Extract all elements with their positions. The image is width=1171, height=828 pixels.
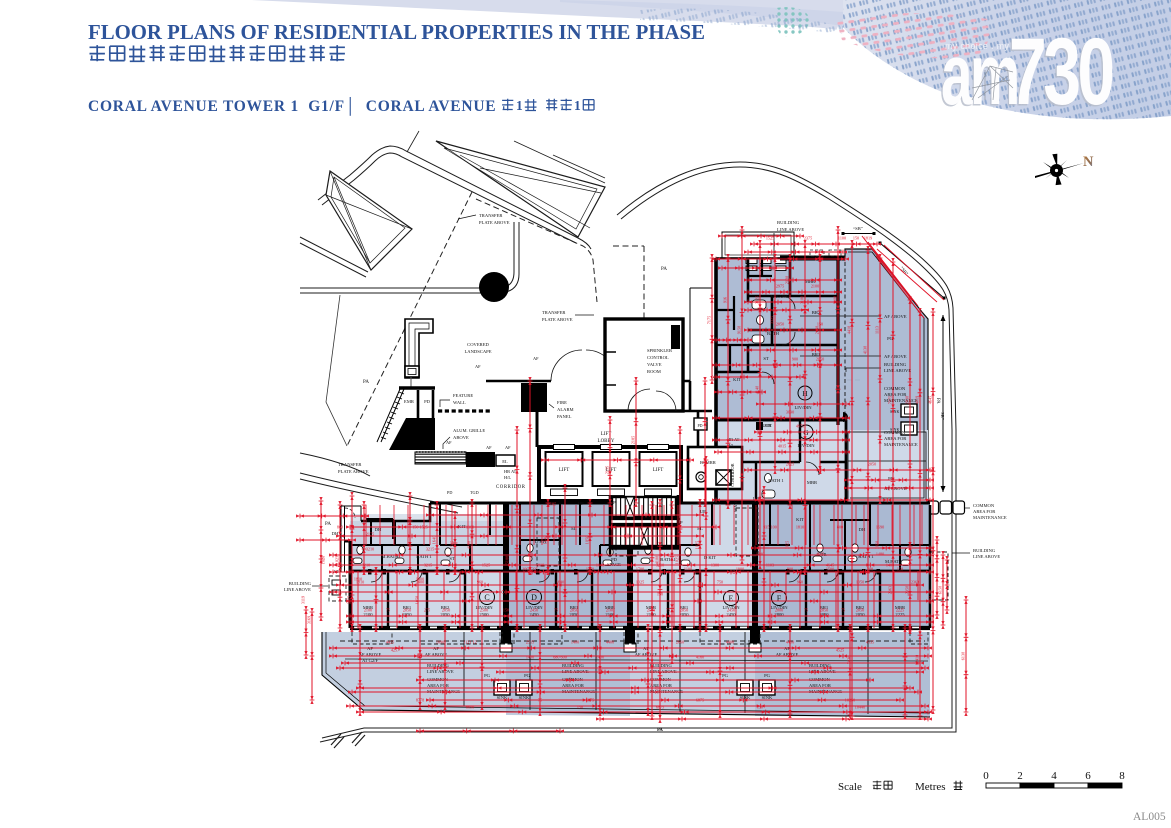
svg-text:TGD: TGD [470,490,479,495]
svg-text:1810: 1810 [536,563,544,568]
svg-text:2363: 2363 [888,586,893,594]
svg-text:6: 6 [1085,770,1091,782]
svg-text:“SB”: “SB” [853,226,863,231]
svg-text:4425: 4425 [386,640,394,645]
svg-text:AREA FOR: AREA FOR [427,683,449,688]
svg-text:BUILDING: BUILDING [562,663,584,668]
svg-text:4645: 4645 [826,563,834,568]
svg-text:4535: 4535 [866,640,874,645]
svg-text:ROOM: ROOM [647,369,661,374]
svg-text:CORRIDOR: CORRIDOR [496,485,526,490]
svg-text:TRANSFER: TRANSFER [479,213,503,218]
svg-text:4: 4 [1051,770,1057,782]
svg-text:KIT: KIT [733,377,741,382]
svg-text:75: 75 [666,608,670,613]
svg-text:300: 300 [867,567,873,572]
svg-text:2375: 2375 [804,236,812,241]
svg-text:2100: 2100 [785,276,790,284]
svg-text:1480: 1480 [876,552,884,557]
svg-text:UTR: UTR [762,423,772,428]
svg-text:2175: 2175 [366,532,374,537]
svg-text:ST: ST [763,356,769,361]
svg-text:4100: 4100 [655,556,660,564]
svg-text:PG: PG [764,673,771,678]
svg-text:RSMRR: RSMRR [700,460,717,465]
svg-text:75: 75 [386,608,390,613]
svg-text:2050: 2050 [776,322,784,327]
svg-text:BUILDING: BUILDING [650,663,672,668]
svg-text:FIRE: FIRE [557,400,567,405]
svg-text:AL005: AL005 [1133,811,1166,823]
svg-text:1640: 1640 [432,536,437,544]
svg-text:10440: 10440 [855,705,865,710]
svg-text:AF: AF [533,356,539,361]
svg-text:1050: 1050 [415,596,420,604]
svg-text:4400: 4400 [786,640,794,645]
svg-text:4525: 4525 [836,648,844,653]
svg-text:2135: 2135 [605,466,610,474]
svg-text:FEATURE: FEATURE [453,393,473,398]
svg-text:Scale: Scale [838,781,862,793]
svg-text:75: 75 [538,698,542,703]
svg-text:2050: 2050 [856,608,864,613]
svg-text:1050: 1050 [875,541,880,549]
svg-text:1690: 1690 [436,640,444,645]
svg-text:AREA FOR: AREA FOR [973,509,996,514]
svg-text:AREA FOR: AREA FOR [650,683,672,688]
svg-text:BUILDING: BUILDING [884,362,907,367]
svg-text:6130: 6130 [961,652,966,660]
svg-text:2185: 2185 [631,436,636,444]
svg-text:ALARM: ALARM [557,407,574,412]
svg-text:WALL: WALL [453,400,466,405]
svg-text:AF: AF [505,445,511,450]
svg-text:BUILDING: BUILDING [973,548,996,553]
svg-text:3215: 3215 [424,563,432,568]
svg-text:4400: 4400 [726,640,734,645]
svg-text:7028: 7028 [847,656,852,664]
svg-text:4410: 4410 [847,326,852,334]
svg-text:LOBBY: LOBBY [598,439,615,444]
svg-text:2975: 2975 [776,284,784,289]
svg-text:2100: 2100 [811,284,819,289]
svg-text:4312: 4312 [928,596,933,604]
svg-text:TRANSFER: TRANSFER [338,462,362,467]
svg-text:LINE ABOVE: LINE ABOVE [884,368,911,373]
svg-text:1103: 1103 [766,563,774,568]
svg-text:CONTROL: CONTROL [647,355,669,360]
svg-text:150: 150 [503,608,509,613]
svg-text:4645: 4645 [928,396,933,404]
svg-text:1100: 1100 [684,567,692,572]
svg-text:COVERED: COVERED [467,342,489,347]
svg-text:EL: EL [502,459,508,464]
svg-text:KIT: KIT [796,517,804,522]
svg-text:3090: 3090 [786,410,794,415]
svg-text:3215: 3215 [426,547,434,552]
svg-text:150: 150 [853,236,859,241]
svg-text:UP: UP [610,500,616,505]
svg-text:860: 860 [337,525,343,530]
svg-text:2100: 2100 [647,608,655,613]
svg-text:2100: 2100 [606,608,614,613]
svg-text:2350: 2350 [905,586,910,594]
svg-text:1810: 1810 [356,580,364,585]
svg-text:3169: 3169 [307,616,312,624]
svg-text:4160: 4160 [696,655,704,660]
svg-text:2625: 2625 [786,462,794,467]
svg-text:F: F [777,594,782,603]
svg-text:800: 800 [787,567,793,572]
svg-text:PA: PA [657,727,663,732]
svg-text:MBR: MBR [807,480,818,485]
svg-text:SINK: SINK [762,695,773,700]
svg-text:PA: PA [661,267,667,272]
svg-text:1690: 1690 [876,525,884,530]
svg-text:1025: 1025 [675,556,680,564]
svg-text:1300: 1300 [711,563,719,568]
svg-text:4975: 4975 [796,424,804,429]
svg-text:150 1525: 150 1525 [412,525,428,530]
svg-text:2030: 2030 [905,396,910,404]
svg-text:PG: PG [484,673,491,678]
svg-text:1525: 1525 [482,563,490,568]
svg-text:916: 916 [723,297,728,303]
svg-text:2050: 2050 [680,608,688,613]
svg-text:8: 8 [1119,770,1125,782]
svg-text:2450: 2450 [727,608,735,613]
svg-text:ABOVE: ABOVE [453,435,469,440]
svg-text:EMR: EMR [404,399,415,404]
svg-text:LANDSCAPE: LANDSCAPE [464,349,491,354]
svg-text:275: 275 [424,608,430,613]
svg-text:935 100: 935 100 [763,525,777,530]
svg-text:1300: 1300 [466,525,474,530]
svg-text:PA: PA [935,398,940,404]
svg-text:2100: 2100 [364,608,372,613]
svg-text:SINK: SINK [519,695,530,700]
svg-text:LINE ABOVE: LINE ABOVE [973,554,1000,559]
svg-text:2515: 2515 [526,640,534,645]
svg-text:TRANSFER: TRANSFER [542,310,566,315]
svg-text:960: 960 [477,580,483,585]
svg-text:AF: AF [446,440,452,445]
svg-text:7175: 7175 [707,316,712,324]
svg-text:SPRINKLER: SPRINKLER [647,348,673,353]
svg-text:AF ABOVE: AF ABOVE [884,314,907,319]
svg-text:LIFT: LIFT [559,468,570,473]
svg-text:1480: 1480 [886,563,894,568]
svg-text:800: 800 [837,525,843,530]
svg-text:3125: 3125 [755,296,760,304]
svg-text:75: 75 [804,608,808,613]
svg-text:1400: 1400 [571,640,579,645]
svg-text:3119: 3119 [301,596,306,604]
svg-text:COMMON: COMMON [884,430,906,435]
svg-text:6875: 6875 [656,705,664,710]
svg-text:3210: 3210 [362,563,370,568]
svg-text:1700: 1700 [636,567,644,572]
svg-text:PG: PG [722,673,729,678]
svg-text:AF: AF [475,364,481,369]
svg-text:900: 900 [792,357,798,362]
svg-text:3325: 3325 [770,316,775,324]
svg-text:2800: 2800 [775,608,783,613]
svg-text:LINE ABOVE: LINE ABOVE [284,587,311,592]
svg-text:1400: 1400 [596,655,604,660]
svg-text:1025: 1025 [785,541,790,549]
svg-text:AF ABOVE: AF ABOVE [884,354,907,359]
svg-text:1400: 1400 [416,580,424,585]
svg-text:4400: 4400 [606,640,614,645]
svg-text:1810: 1810 [796,525,804,530]
svg-text:4130: 4130 [863,346,868,354]
svg-text:1340: 1340 [756,552,764,557]
svg-text:8650: 8650 [466,705,474,710]
svg-text:1050: 1050 [856,580,864,585]
svg-text:1819: 1819 [864,236,872,241]
svg-text:4019: 4019 [915,396,920,404]
svg-text:7100: 7100 [655,686,660,694]
svg-text:2500: 2500 [480,608,488,613]
svg-text:VALVE: VALVE [647,362,662,367]
svg-text:0: 0 [983,770,989,782]
svg-text:750: 750 [717,580,723,585]
svg-text:2450: 2450 [530,608,538,613]
svg-text:150: 150 [897,567,903,572]
svg-text:LINE ABOVE: LINE ABOVE [777,227,804,232]
svg-text:BUILDING: BUILDING [289,581,312,586]
svg-text:N: N [1083,154,1094,170]
svg-text:4015: 4015 [778,444,786,449]
svg-text:680 600: 680 600 [553,655,567,660]
svg-text:BUILDING: BUILDING [809,663,831,668]
svg-text:1640: 1640 [556,580,564,585]
svg-text:1100: 1100 [838,236,846,241]
svg-text:1: 1 [516,98,523,113]
svg-text:PA: PA [325,522,331,527]
svg-text:2050: 2050 [570,608,578,613]
svg-text:H/L: H/L [504,475,511,480]
svg-text:MAINTENANCE: MAINTENANCE [973,515,1007,520]
svg-text:Metres: Metres [915,781,946,793]
svg-text:2050: 2050 [442,608,450,613]
svg-text:75: 75 [554,608,558,613]
svg-text:UP: UP [578,501,584,506]
svg-text:AREA FOR: AREA FOR [884,436,907,441]
svg-text:1640: 1640 [596,563,604,568]
svg-text:PLATE ABOVE: PLATE ABOVE [542,317,573,322]
svg-text:PD: PD [697,423,702,428]
svg-text:BATH: BATH [767,331,780,336]
svg-text:1400: 1400 [526,655,534,660]
svg-text:M.BATH: M.BATH [770,294,788,299]
svg-text:2225: 2225 [896,608,904,613]
svg-text:2: 2 [1017,770,1023,782]
svg-text:COMMON: COMMON [884,386,906,391]
svg-text:AREA FOR: AREA FOR [809,683,831,688]
svg-text:6875: 6875 [696,698,704,703]
svg-text:AF: AF [486,445,492,450]
svg-text:2050: 2050 [820,608,828,613]
svg-text:150: 150 [817,322,823,327]
svg-text:LIFT: LIFT [653,468,664,473]
svg-text:MAINTENANCE: MAINTENANCE [884,442,918,447]
svg-text:3100: 3100 [800,296,805,304]
svg-text:2050: 2050 [868,462,876,467]
svg-text:PANEL: PANEL [557,414,572,419]
svg-text:PD: PD [424,399,431,404]
svg-text:5188: 5188 [505,556,510,564]
svg-text:AREA FOR: AREA FOR [562,683,584,688]
svg-text:2660: 2660 [676,640,684,645]
svg-text:FLOOR PLANS OF RESIDENTIAL PRO: FLOOR PLANS OF RESIDENTIAL PROPERTIES IN… [88,21,705,44]
svg-text:ALUM. GRILLE: ALUM. GRILLE [453,428,485,433]
svg-text:1050: 1050 [585,536,590,544]
svg-text:CORRIDOR: CORRIDOR [730,462,735,487]
svg-text:ST: ST [449,556,455,561]
svg-text:1025: 1025 [636,580,644,585]
svg-text:DH: DH [859,527,866,532]
svg-text:CORAL AVENUE TOWER 1 G1/F│ C: CORAL AVENUE TOWER 1 G1/F│ CORAL AVENUE [88,96,496,116]
svg-text:2363: 2363 [911,580,919,585]
svg-text:9150: 9150 [737,326,742,334]
svg-text:730: 730 [1009,19,1113,125]
svg-text:PLATE ABOVE: PLATE ABOVE [479,220,510,225]
svg-text:LINE ABOVE: LINE ABOVE [427,669,454,674]
svg-text:DH: DH [375,527,382,532]
svg-text:am: am [941,27,1018,123]
svg-text:SINK: SINK [890,409,899,414]
svg-text:E: E [729,594,734,603]
svg-text:1: 1 [574,98,581,113]
svg-text:8778: 8778 [416,698,424,703]
svg-text:PD: PD [447,490,452,495]
svg-text:COMMON: COMMON [973,503,995,508]
svg-text:BUILDING: BUILDING [777,220,800,225]
svg-text:1121 12: 1121 12 [463,640,476,645]
svg-text:BATH 1: BATH 1 [768,478,784,483]
svg-text:3210: 3210 [366,547,374,552]
svg-text:PLATE ABOVE: PLATE ABOVE [338,469,369,474]
svg-text:PA: PA [363,380,369,385]
svg-text:1113: 1113 [875,326,880,334]
svg-text:LIV/DIN: LIV/DIN [794,405,812,410]
svg-text:10250: 10250 [845,698,855,703]
svg-text:PG: PG [524,673,531,678]
svg-text:1525: 1525 [766,236,774,241]
svg-text:4645: 4645 [816,552,824,557]
svg-text:4100: 4100 [467,541,472,549]
svg-text:150: 150 [577,705,583,710]
svg-text:1640: 1640 [543,536,548,544]
svg-text:75: 75 [841,608,845,613]
svg-text:2050: 2050 [403,608,411,613]
svg-text:1525: 1525 [450,541,455,549]
svg-text:960: 960 [797,580,803,585]
svg-text:7075: 7075 [888,396,893,404]
